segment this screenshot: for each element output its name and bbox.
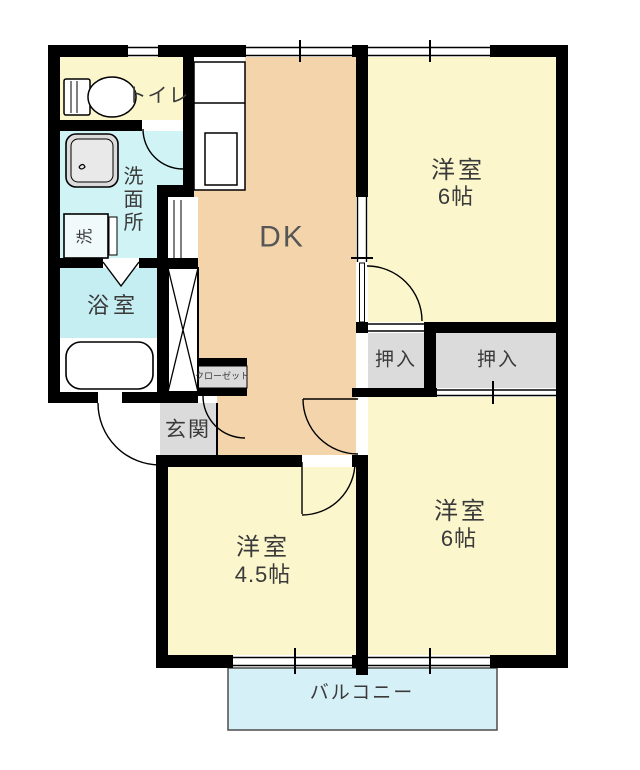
- wall-mid-vertical: [356, 455, 368, 668]
- room-label-bedroom-br: 洋室: [434, 499, 488, 525]
- floorplan-drawing: [0, 0, 640, 770]
- wall-toilet-right: [183, 45, 194, 197]
- room-label-closet: クローゼット: [195, 372, 249, 382]
- room-label-balcony: バルコニー: [310, 684, 415, 705]
- wall-left: [48, 45, 60, 403]
- room-label-bathroom: 浴室: [87, 294, 139, 318]
- door-leaf-room1: [360, 263, 365, 322]
- room-label-washroom: 洗面所: [120, 166, 142, 235]
- room-label-bedroom-bl: 洋室: [236, 535, 290, 561]
- wall-dk-room1: [356, 45, 368, 197]
- wall-washroom-right: [157, 185, 168, 403]
- sink-icon: [66, 134, 118, 187]
- room-label-laundry: 洗: [77, 227, 95, 244]
- wall-right: [556, 45, 568, 668]
- fusuma-oshiire-large: [437, 390, 556, 396]
- floor-plan: DK トイレ 洗面所 洗 浴室 玄関 クローゼット 洋室 6帖 洋室 6帖 洋室…: [0, 0, 640, 770]
- room-label-dk: DK: [259, 221, 305, 254]
- bathtub-icon: [66, 342, 153, 389]
- wall-top-b: [158, 45, 246, 57]
- wall-bath-top-b: [139, 258, 198, 268]
- room-label-oshiire-small: 押入: [375, 351, 417, 372]
- toilet-icon: [64, 77, 136, 117]
- wall-room3-left: [156, 455, 168, 668]
- pipe-shaft: [168, 268, 198, 392]
- kitchen-counter: [194, 62, 245, 190]
- wall-closet-top: [196, 358, 247, 366]
- wall-bath-top-a: [48, 258, 103, 268]
- entrance-wall-notch: [98, 392, 122, 403]
- window-toilet: [128, 48, 158, 56]
- room-size-bedroom-bl: 4.5帖: [235, 563, 292, 587]
- room-label-oshiire-large: 押入: [477, 351, 519, 372]
- room-label-entrance: 玄関: [165, 418, 211, 441]
- wall-toilet-bottom: [48, 120, 142, 131]
- wall-room1-pillar: [356, 322, 368, 333]
- sliding-door-hall: [174, 200, 181, 258]
- room-label-toilet: トイレ: [127, 85, 190, 107]
- fusuma-oshiire-small: [368, 324, 424, 331]
- door-arc-entrance: [98, 403, 160, 465]
- kitchen-sink: [205, 133, 237, 185]
- wall-bath-bottom: [48, 392, 198, 403]
- room-size-bedroom-br: 6帖: [441, 527, 477, 551]
- wall-closet-bottom: [196, 388, 247, 396]
- wall-balcony-stub: [356, 668, 368, 675]
- room-size-bedroom-tr: 6帖: [438, 185, 474, 209]
- wall-oshiire-top: [424, 322, 556, 333]
- room-label-bedroom-tr: 洋室: [431, 158, 485, 184]
- wall-bottom-c: [490, 655, 568, 668]
- wall-oshiire-divider: [424, 333, 436, 388]
- wall-oshiire-bottom: [352, 388, 437, 397]
- wall-room3-top: [156, 455, 302, 467]
- window-bottom-room3: [233, 658, 352, 666]
- partition-room1-left: [358, 197, 367, 262]
